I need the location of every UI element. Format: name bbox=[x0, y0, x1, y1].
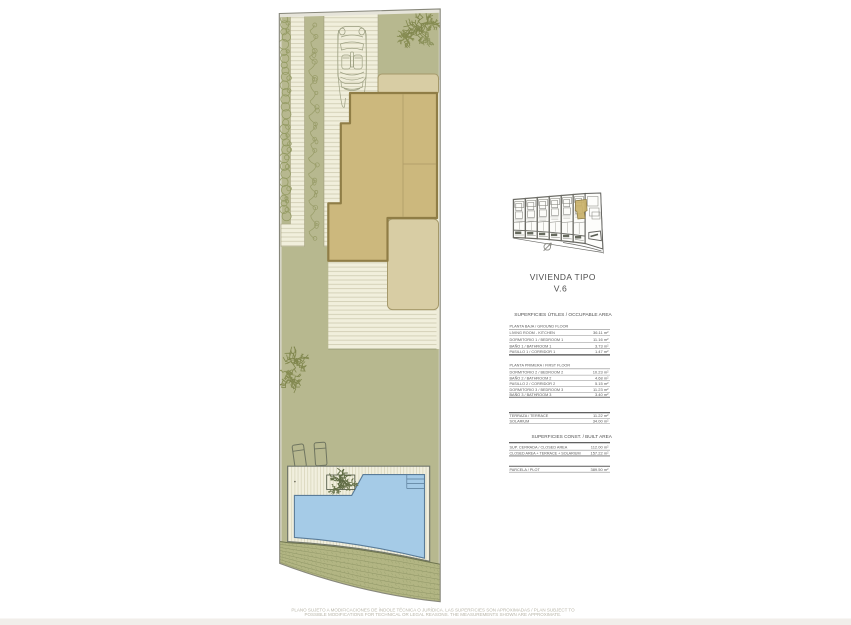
svg-text:34.00 m²: 34.00 m² bbox=[593, 418, 609, 423]
svg-text:SUPERFICIES CONST. / BUILT AR: SUPERFICIES CONST. / BUILT AREA bbox=[532, 434, 613, 439]
svg-text:3.40 m²: 3.40 m² bbox=[595, 392, 609, 397]
svg-text:DORMITORIO 1 / BEDROOM 1: DORMITORIO 1 / BEDROOM 1 bbox=[510, 338, 564, 342]
svg-text:DORMITORIO 3 / BEDROOM 3: DORMITORIO 3 / BEDROOM 3 bbox=[510, 388, 564, 392]
svg-text:BAÑO 3 / BATHROOM 3: BAÑO 3 / BATHROOM 3 bbox=[510, 392, 552, 397]
svg-text:VIVIENDA TIPO: VIVIENDA TIPO bbox=[530, 272, 596, 282]
svg-text:SOLARIUM: SOLARIUM bbox=[510, 419, 530, 423]
svg-text:1.47 m²: 1.47 m² bbox=[595, 349, 609, 354]
svg-text:PLANTA BAJA / GROUND FLOOR: PLANTA BAJA / GROUND FLOOR bbox=[510, 324, 569, 328]
svg-text:10.23 m²: 10.23 m² bbox=[593, 370, 609, 375]
svg-text:PARCELA / PLOT: PARCELA / PLOT bbox=[510, 468, 541, 472]
svg-text:PASILLO 2 / CORRIDOR 2: PASILLO 2 / CORRIDOR 2 bbox=[510, 382, 556, 386]
svg-text:CLOSED AREA + TERRACE + SOLARI: CLOSED AREA + TERRACE + SOLARIUM bbox=[510, 452, 581, 456]
svg-text:V.6: V.6 bbox=[554, 283, 568, 293]
svg-text:389.50 m²: 389.50 m² bbox=[590, 467, 609, 472]
svg-text:BAÑO 1 / BATHROOM 1: BAÑO 1 / BATHROOM 1 bbox=[510, 343, 552, 348]
svg-text:SUPERFICIES ÚTILES / OCCUPABLE: SUPERFICIES ÚTILES / OCCUPABLE AREA bbox=[514, 311, 612, 318]
svg-text:BAÑO 2 / BATHROOM 2: BAÑO 2 / BATHROOM 2 bbox=[510, 375, 552, 380]
svg-text:36.11 m²: 36.11 m² bbox=[593, 330, 609, 335]
svg-text:157.22 m²: 157.22 m² bbox=[590, 451, 609, 456]
svg-text:4.68 m²: 4.68 m² bbox=[595, 375, 609, 380]
svg-text:SUP. CERRADA / CLOSED AREA: SUP. CERRADA / CLOSED AREA bbox=[510, 445, 568, 449]
svg-text:112.00 m²: 112.00 m² bbox=[591, 444, 609, 449]
svg-text:TERRAZA / TERRACE: TERRAZA / TERRACE bbox=[510, 414, 549, 418]
svg-text:3.73 m²: 3.73 m² bbox=[595, 343, 609, 348]
svg-text:DORMITORIO 2 / BEDROOM 2: DORMITORIO 2 / BEDROOM 2 bbox=[510, 371, 564, 375]
svg-text:POSSIBLE MODIFICATIONS FOR TEC: POSSIBLE MODIFICATIONS FOR TECHNICAL OR … bbox=[305, 612, 562, 617]
svg-text:PASILLO 1 / CORRIDOR 1: PASILLO 1 / CORRIDOR 1 bbox=[510, 350, 556, 354]
svg-text:LIVING ROOM - KITCHEN: LIVING ROOM - KITCHEN bbox=[510, 331, 556, 335]
svg-text:5.15 m²: 5.15 m² bbox=[595, 381, 609, 386]
svg-text:PLANTA PRIMERA / FIRST FLOOR: PLANTA PRIMERA / FIRST FLOOR bbox=[510, 363, 571, 367]
svg-text:11.16 m²: 11.16 m² bbox=[593, 337, 609, 342]
